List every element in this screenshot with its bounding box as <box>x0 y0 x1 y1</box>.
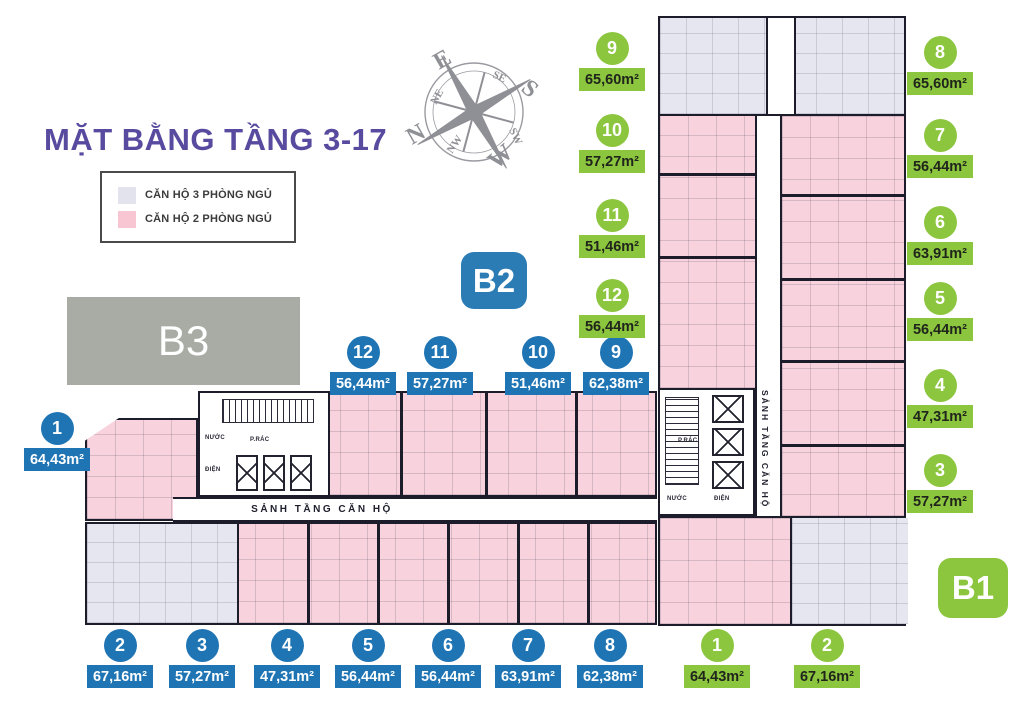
legend-row-2br: CĂN HỘ 2 PHÒNG NGỦ <box>118 211 294 228</box>
unit-number-badge: 3 <box>185 629 218 662</box>
compass-rose-icon: E S W N SE NE SW NW <box>396 30 552 190</box>
unit-number-badge: 2 <box>103 629 136 662</box>
unit-label-b2-1: 1 64,43m² <box>24 412 90 471</box>
unit-number-badge: 9 <box>595 32 628 65</box>
unit-area-label: 62,38m² <box>583 372 649 395</box>
unit-number-badge: 7 <box>923 119 956 152</box>
unit-area-label: 57,27m² <box>907 490 973 513</box>
elevator-icon <box>263 455 285 491</box>
trash-room-label: P.RÁC <box>250 437 269 443</box>
unit-label-b2-5: 5 56,44m² <box>335 629 401 688</box>
unit-label-b1-12: 12 56,44m² <box>579 279 645 338</box>
unit-label-b1-7: 7 56,44m² <box>907 119 973 178</box>
b2-unit2-3br <box>87 524 239 623</box>
unit-label-b2-7: 7 63,91m² <box>495 629 561 688</box>
unit-area-label: 57,27m² <box>169 665 235 688</box>
unit-area-label: 57,27m² <box>407 372 473 395</box>
electric-room-label: ĐIỆN <box>714 496 730 502</box>
stairs-icon <box>222 399 314 423</box>
unit-number-badge: 12 <box>595 279 628 312</box>
block-b3-badge: B3 <box>67 297 300 385</box>
unit-area-label: 56,44m² <box>415 665 481 688</box>
wall-divider <box>782 278 904 281</box>
unit-label-b2-3: 3 57,27m² <box>169 629 235 688</box>
wall-divider <box>377 524 380 623</box>
b2-corridor: SẢNH TẦNG CĂN HỘ <box>173 497 657 522</box>
elevator-icon <box>712 428 744 456</box>
unit-label-b2-12: 12 56,44m² <box>330 336 396 395</box>
elevator-icon <box>236 455 258 491</box>
unit-number-badge: 10 <box>595 114 628 147</box>
unit-number-badge: 11 <box>595 199 628 232</box>
b1-right-unit-column <box>782 116 906 516</box>
svg-text:SE: SE <box>491 69 508 86</box>
b1-unit2-3br <box>790 518 908 624</box>
unit-label-b1-1: 1 64,43m² <box>684 629 750 688</box>
electric-room-label: ĐIỆN <box>205 467 221 473</box>
wall-divider <box>307 524 310 623</box>
unit-number-badge: 1 <box>700 629 733 662</box>
unit-area-label: 57,27m² <box>579 150 645 173</box>
block-b2-badge: B2 <box>461 252 527 309</box>
unit-number-badge: 7 <box>511 629 544 662</box>
unit-number-badge: 5 <box>923 282 956 315</box>
unit-area-label: 65,60m² <box>907 72 973 95</box>
legend-label-3br: CĂN HỘ 3 PHÒNG NGỦ <box>145 189 272 201</box>
tower-b1-floorplan: SẢNH TẦNG CĂN HỘ P.RÁC NƯỚC ĐIỆN <box>658 16 906 628</box>
trash-room-label: P.RÁC <box>678 438 697 444</box>
b2-corridor-label: SẢNH TẦNG CĂN HỘ <box>222 504 422 515</box>
unit-number-badge: 8 <box>593 629 626 662</box>
unit-label-b2-11: 11 57,27m² <box>407 336 473 395</box>
legend-box: CĂN HỘ 3 PHÒNG NGỦ CĂN HỘ 2 PHÒNG NGỦ <box>100 171 296 243</box>
unit-area-label: 67,16m² <box>87 665 153 688</box>
unit-area-label: 64,43m² <box>24 448 90 471</box>
unit-number-badge: 3 <box>923 454 956 487</box>
unit-area-label: 47,31m² <box>254 665 320 688</box>
wall-divider <box>447 524 450 623</box>
legend-swatch-2br <box>118 211 136 228</box>
unit-area-label: 63,91m² <box>495 665 561 688</box>
unit-area-label: 56,44m² <box>330 372 396 395</box>
b1-left-unit-column <box>658 116 755 388</box>
b1-corridor-label: SẢNH TẦNG CĂN HỘ <box>760 390 770 514</box>
wall-divider <box>485 393 488 495</box>
elevator-icon <box>712 395 744 423</box>
b1-bottom-unit-block <box>658 516 906 626</box>
unit-label-b1-4: 4 47,31m² <box>907 369 973 428</box>
page-title: MẶT BẰNG TẦNG 3-17 <box>44 122 387 158</box>
unit-number-badge: 4 <box>923 369 956 402</box>
block-b1-badge: B1 <box>938 558 1008 618</box>
unit-label-b2-9: 9 62,38m² <box>583 336 649 395</box>
unit-number-badge: 6 <box>923 206 956 239</box>
water-room-label: NƯỚC <box>667 496 687 502</box>
wall-divider <box>517 524 520 623</box>
unit-area-label: 51,46m² <box>505 372 571 395</box>
svg-text:S: S <box>516 75 543 104</box>
unit-area-label: 63,91m² <box>907 242 973 265</box>
unit-area-label: 56,44m² <box>907 155 973 178</box>
b1-service-core: P.RÁC NƯỚC ĐIỆN <box>658 388 755 516</box>
unit-area-label: 62,38m² <box>577 665 643 688</box>
floorplan-page: MẶT BẰNG TẦNG 3-17 CĂN HỘ 3 PHÒNG NGỦ CĂ… <box>0 0 1024 713</box>
legend-swatch-3br <box>118 187 136 204</box>
unit-number-badge: 10 <box>521 336 554 369</box>
wall-divider <box>660 173 755 176</box>
b1-top-unit-block <box>658 16 906 116</box>
unit-number-badge: 11 <box>423 336 456 369</box>
unit-number-badge: 2 <box>810 629 843 662</box>
svg-text:SW: SW <box>506 126 524 147</box>
svg-text:NW: NW <box>445 133 466 155</box>
unit-label-b1-9: 9 65,60m² <box>579 32 645 91</box>
unit-area-label: 56,44m² <box>335 665 401 688</box>
wall-divider <box>660 256 755 259</box>
unit-label-b1-2: 2 67,16m² <box>794 629 860 688</box>
b2-bottom-unit-row <box>85 522 657 625</box>
wall-divider <box>782 360 904 363</box>
unit-label-b1-8: 8 65,60m² <box>907 36 973 95</box>
unit-number-badge: 4 <box>270 629 303 662</box>
unit-number-badge: 12 <box>346 336 379 369</box>
wall-divider <box>782 194 904 197</box>
unit-area-label: 64,43m² <box>684 665 750 688</box>
unit-label-b1-11: 11 51,46m² <box>579 199 645 258</box>
unit-number-badge: 9 <box>599 336 632 369</box>
unit-number-badge: 5 <box>351 629 384 662</box>
unit-label-b2-4: 4 47,31m² <box>254 629 320 688</box>
unit-label-b2-8: 8 62,38m² <box>577 629 643 688</box>
legend-row-3br: CĂN HỘ 3 PHÒNG NGỦ <box>118 187 294 204</box>
unit-area-label: 47,31m² <box>907 405 973 428</box>
unit-label-b2-2: 2 67,16m² <box>87 629 153 688</box>
wall-divider <box>400 393 403 495</box>
elevator-icon <box>290 455 312 491</box>
tower-b2-floorplan: NƯỚC ĐIỆN P.RÁC SẢNH TẦNG CĂN HỘ <box>85 391 657 625</box>
legend-label-2br: CĂN HỘ 2 PHÒNG NGỦ <box>145 213 272 225</box>
water-room-label: NƯỚC <box>205 435 225 441</box>
unit-label-b1-3: 3 57,27m² <box>907 454 973 513</box>
unit-label-b1-10: 10 57,27m² <box>579 114 645 173</box>
wall-divider <box>587 524 590 623</box>
unit-area-label: 67,16m² <box>794 665 860 688</box>
unit-number-badge: 8 <box>923 36 956 69</box>
unit-label-b2-6: 6 56,44m² <box>415 629 481 688</box>
b1-corridor-top <box>766 18 796 114</box>
unit-area-label: 56,44m² <box>579 315 645 338</box>
unit-number-badge: 6 <box>431 629 464 662</box>
unit-label-b1-6: 6 63,91m² <box>907 206 973 265</box>
b2-service-core: NƯỚC ĐIỆN P.RÁC <box>198 391 330 497</box>
unit-area-label: 56,44m² <box>907 318 973 341</box>
unit-area-label: 65,60m² <box>579 68 645 91</box>
elevator-icon <box>712 461 744 489</box>
wall-divider <box>575 393 578 495</box>
unit-number-badge: 1 <box>40 412 73 445</box>
unit-label-b2-10: 10 51,46m² <box>505 336 571 395</box>
unit-label-b1-5: 5 56,44m² <box>907 282 973 341</box>
unit-area-label: 51,46m² <box>579 235 645 258</box>
wall-divider <box>782 444 904 447</box>
